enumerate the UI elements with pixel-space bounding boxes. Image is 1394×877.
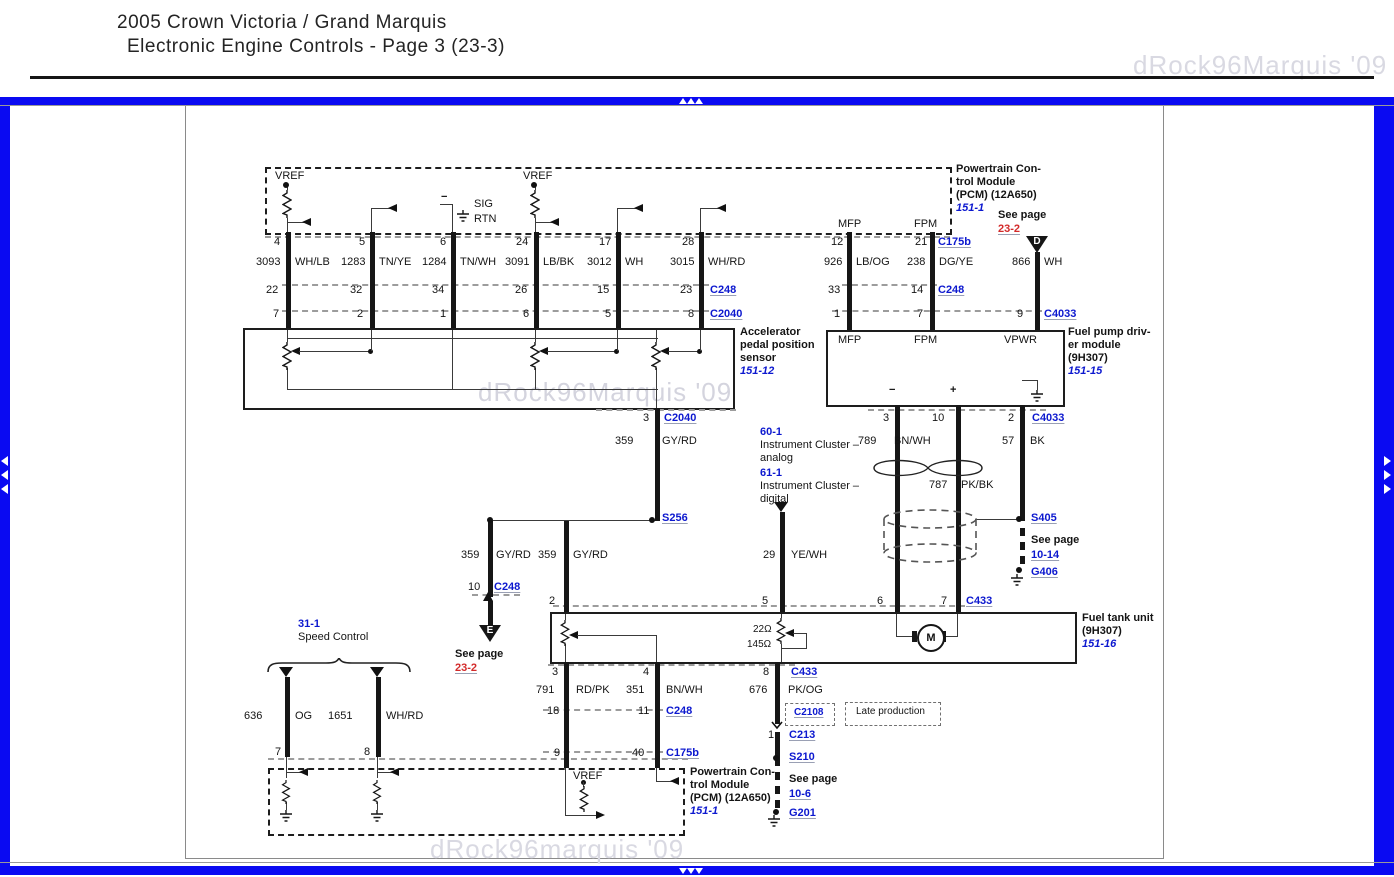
- ftu-wiper2-drop: [806, 633, 807, 649]
- sc2-drop: [377, 757, 378, 778]
- wire-57-dashed: [1020, 528, 1025, 570]
- wire-791: [564, 662, 569, 768]
- sigrtn-ground-icon: [456, 210, 470, 222]
- minus-label: −: [441, 191, 447, 204]
- wire-gauge: 359: [538, 549, 556, 562]
- wire-926: [847, 232, 852, 330]
- app-pot1-resistor: [282, 342, 292, 370]
- pin-number: 34: [432, 284, 444, 297]
- watermark-bottom: dRock96marquis '09: [430, 834, 684, 865]
- connector-c2040: C2040: [664, 412, 696, 425]
- connector-c248: C248: [938, 284, 964, 297]
- see-page-label: See page: [998, 209, 1046, 222]
- fpdm-ground-icon: [1030, 390, 1044, 402]
- pin-number: 1: [768, 729, 774, 742]
- wire-gauge: 1283: [341, 256, 365, 269]
- pin-number: 6: [877, 595, 883, 608]
- scroll-right-icon[interactable]: [1384, 484, 1391, 494]
- fpdm-fpm-label: FPM: [914, 334, 937, 347]
- connector-c248: C248: [666, 705, 692, 718]
- scroll-left-icon[interactable]: [1, 470, 8, 480]
- pin-number: 2: [549, 595, 555, 608]
- wire-color: WH: [1044, 256, 1062, 269]
- sc2-arrow-icon: [390, 768, 399, 776]
- fpdm-label-line2: er module: [1068, 339, 1121, 352]
- fpdm-mfp-label: MFP: [838, 334, 861, 347]
- app-pot2-bot: [535, 368, 536, 390]
- wire-636: [285, 677, 290, 757]
- scroll-up-icon[interactable]: [679, 98, 687, 104]
- speed-wire1-arrow-icon: [279, 667, 293, 677]
- fpdm-vpwr-label: VPWR: [1004, 334, 1037, 347]
- fpdm-plus-label: +: [950, 384, 956, 397]
- pin-number: 10: [932, 412, 944, 425]
- vref3-resistor: [579, 786, 589, 812]
- wire-1283: [370, 232, 375, 328]
- wire-color: DG/YE: [939, 256, 973, 269]
- inner-top-line: [0, 105, 1394, 106]
- vref1-lead2: [287, 218, 288, 232]
- wire-color: GY/RD: [496, 549, 531, 562]
- shield-icon: [880, 508, 980, 566]
- pin-number: 15: [597, 284, 609, 297]
- ftu-resistance-22: 22Ω: [753, 624, 772, 636]
- wire-gauge: 29: [763, 549, 775, 562]
- ftu-motor-line1: [896, 636, 912, 637]
- pin-number: 9: [1017, 308, 1023, 321]
- wire-color: TN/WH: [460, 256, 496, 269]
- rtn-label: RTN: [474, 213, 496, 226]
- wire-gauge: 3091: [505, 256, 529, 269]
- wire-gauge: 866: [1012, 256, 1030, 269]
- splice-s256: S256: [662, 512, 688, 525]
- app-sensor-label-line2: pedal position: [740, 339, 815, 352]
- app-wiper1-line: [299, 351, 372, 352]
- sc1-ground-icon: [279, 810, 293, 822]
- pin-number: 4: [274, 236, 280, 249]
- wire-gauge: 3093: [256, 256, 280, 269]
- pin40-arrow-icon: [670, 777, 679, 785]
- pin5-riser: [371, 208, 372, 232]
- scroll-down-icon[interactable]: [679, 868, 687, 874]
- fpdm-page-ref: 151-15: [1068, 365, 1102, 378]
- app-pot2-top: [535, 330, 536, 342]
- app-pot3-bot: [656, 368, 657, 390]
- connector-line-c4033-top: [832, 310, 1042, 312]
- speed-control-label: Speed Control: [298, 631, 368, 644]
- wire-gauge: 676: [749, 684, 767, 697]
- app-out-drop: [656, 390, 657, 408]
- pin4-arrow-icon: [302, 218, 311, 226]
- ftu-wiper-drop: [656, 635, 657, 662]
- vref2-lead2: [535, 218, 536, 232]
- vref1-resistor: [282, 190, 292, 218]
- ftu-pot2-bot: [781, 644, 782, 662]
- wire-1284: [451, 232, 456, 328]
- connector-c433: C433: [966, 595, 992, 608]
- fpdm-gnd-bracket: [1022, 380, 1038, 381]
- vref-label: VREF: [275, 170, 304, 183]
- wire-3012: [616, 232, 621, 328]
- accelerator-pedal-sensor-box: [243, 328, 735, 410]
- pin-number: 21: [915, 236, 927, 249]
- sc2-resistor: [372, 780, 382, 804]
- pin-number: 7: [917, 308, 923, 321]
- cluster-digital-line2: digital: [760, 493, 789, 506]
- fpm-label: FPM: [914, 218, 937, 231]
- connector-line-c175b-bottom: [543, 751, 663, 753]
- pin-number: 9: [554, 747, 560, 760]
- wire-351: [655, 662, 660, 768]
- pin-number: 12: [831, 236, 843, 249]
- wire-gauge: 359: [615, 435, 633, 448]
- ftu-wiper2-line: [793, 633, 807, 634]
- junction-dot-359: [487, 517, 493, 523]
- pcm-bottom-label-line2: trol Module: [690, 779, 749, 792]
- cluster-digital-ref: 61-1: [760, 467, 782, 480]
- connector-c2040: C2040: [710, 308, 742, 321]
- app-sensor-label-line3: sensor: [740, 352, 776, 365]
- wire-359-left: [488, 521, 493, 597]
- ftu-label-line2: (9H307): [1082, 625, 1122, 638]
- app-wiper2-line: [547, 351, 618, 352]
- see-page-label: See page: [1031, 534, 1079, 547]
- ftu-motor-line2: [946, 636, 958, 637]
- sigrtn-riser: [452, 204, 453, 232]
- s210-splice-dot: [773, 755, 779, 761]
- connector-c175b: C175b: [666, 747, 699, 760]
- app-bottom-rail: [288, 389, 658, 390]
- ftu-resistance-145: 145Ω: [747, 639, 771, 651]
- wire-676-a: [775, 662, 780, 724]
- wire-359-main: [655, 408, 660, 521]
- scroll-right-icon[interactable]: [1384, 470, 1391, 480]
- vref-label: VREF: [523, 170, 552, 183]
- wire-gauge: 359: [461, 549, 479, 562]
- pin-number: 8: [763, 666, 769, 679]
- cluster-analog-ref: 60-1: [760, 426, 782, 439]
- off-page-arrow-e-icon: E: [479, 625, 501, 642]
- g406-ground-icon: [1010, 574, 1024, 586]
- app-wiper3-riser: [700, 330, 701, 351]
- pin-number: 24: [516, 236, 528, 249]
- splice-s405: S405: [1031, 512, 1057, 525]
- ftu-page-ref: 151-16: [1082, 638, 1116, 651]
- scroll-up-icon[interactable]: [687, 98, 695, 104]
- app-pot1-top: [287, 330, 288, 342]
- wire-3091: [534, 232, 539, 328]
- app-sigrtn-drop: [452, 330, 453, 390]
- wire-3093: [286, 232, 291, 328]
- sigrtn-bracket: [440, 204, 453, 205]
- wire-color: WH: [625, 256, 643, 269]
- ftu-wiper-line: [577, 635, 657, 636]
- wire-3015: [699, 232, 704, 328]
- pin-number: 28: [682, 236, 694, 249]
- inner-bottom-line: [0, 862, 1394, 863]
- connector-line-c248-left: [282, 284, 709, 286]
- pin-number: 2: [1008, 412, 1014, 425]
- pcm-bottom-label-line3: (PCM) (12A650): [690, 792, 771, 805]
- app-wiper1-riser: [371, 330, 372, 351]
- ftu-sender-resistor: [560, 620, 570, 646]
- wire-color: PK/BK: [961, 479, 993, 492]
- see-page-label: See page: [455, 648, 503, 661]
- pin-number: 11: [638, 705, 649, 718]
- sc2-ground-icon: [370, 810, 384, 822]
- pcm-page-ref: 151-1: [956, 202, 984, 215]
- wire-color: WH/RD: [708, 256, 745, 269]
- g406-dot: [1016, 567, 1022, 573]
- app-top-rail: [288, 338, 658, 339]
- wire-359-right: [564, 521, 569, 612]
- wire-gauge: 787: [929, 479, 947, 492]
- off-page-arrow-d-icon: D: [1026, 236, 1048, 253]
- speed-wire2-arrow-icon: [370, 667, 384, 677]
- s405-tie-line: [976, 519, 1020, 520]
- s405-splice-dot: [1016, 516, 1022, 522]
- pin-number: 5: [762, 595, 768, 608]
- g201-dot: [773, 809, 779, 815]
- connector-c2108: C2108: [794, 707, 823, 719]
- wire-gauge: 636: [244, 710, 262, 723]
- pcm-label-line3: (PCM) (12A650): [956, 189, 1037, 202]
- connector-line-c2040: [282, 310, 709, 312]
- pin-number: 8: [364, 746, 370, 759]
- pin-number: 3: [643, 412, 649, 425]
- app-wiper2-riser: [617, 330, 618, 351]
- ftu-motor-lead1: [896, 614, 897, 637]
- pin-number: 26: [515, 284, 527, 297]
- scan-right-edge: [1163, 106, 1164, 858]
- pin-number: 14: [911, 284, 923, 297]
- wire-color: GY/RD: [662, 435, 697, 448]
- pin-number: 1: [440, 308, 446, 321]
- pin-number: 4: [643, 666, 649, 679]
- ftu-level-resistor: [776, 618, 786, 644]
- pin-number: 5: [359, 236, 365, 249]
- pin17-riser: [617, 208, 618, 232]
- wire-676-dashed: [775, 758, 780, 812]
- pin-number: 6: [523, 308, 529, 321]
- sig-label: SIG: [474, 198, 493, 211]
- connector-c175b: C175b: [938, 236, 971, 249]
- app-sensor-page-ref: 151-12: [740, 365, 774, 378]
- app-pot3-top: [656, 330, 657, 342]
- wire-color: TN/YE: [379, 256, 411, 269]
- wire-gauge: 57: [1002, 435, 1014, 448]
- pin-number: 7: [273, 308, 279, 321]
- app-pot1-bot: [287, 368, 288, 390]
- wire-color: LB/BK: [543, 256, 574, 269]
- app-pot2-resistor: [530, 342, 540, 370]
- scroll-up-icon[interactable]: [695, 98, 703, 104]
- s256-tie-line: [488, 520, 655, 521]
- fpdm-gnd-drop: [1037, 380, 1038, 390]
- speed-control-ref: 31-1: [298, 618, 320, 631]
- pin-number: 3: [552, 666, 558, 679]
- scan-left-edge: [185, 106, 186, 858]
- wiring-diagram-page: 2005 Crown Victoria / Grand Marquis Elec…: [0, 0, 1394, 877]
- pcm-bottom-box: [268, 768, 685, 836]
- pin-number: 1: [834, 308, 840, 321]
- scroll-left-icon[interactable]: [1, 484, 8, 494]
- wire-color: BN/WH: [666, 684, 703, 697]
- wire-866: [1035, 252, 1040, 330]
- connector-line-pcm-bottom: [268, 758, 688, 760]
- scroll-down-icon[interactable]: [687, 868, 695, 874]
- pin28-arrow-icon: [717, 204, 726, 212]
- vref2-resistor: [530, 190, 540, 218]
- fpdm-label-line3: (9H307): [1068, 352, 1108, 365]
- wire-gauge: 1284: [422, 256, 446, 269]
- sc1-resistor: [281, 780, 291, 804]
- connector-c433: C433: [791, 666, 817, 679]
- wire-gauge: 791: [536, 684, 554, 697]
- wire-gauge: 789: [858, 435, 876, 448]
- connector-c4033: C4033: [1044, 308, 1076, 321]
- wire-color: LB/OG: [856, 256, 890, 269]
- pin-number: 18: [547, 705, 559, 718]
- wire-color: WH/LB: [295, 256, 330, 269]
- pin-number: 6: [440, 236, 446, 249]
- pin5-arrow-icon: [388, 204, 397, 212]
- vref-label: VREF: [573, 770, 602, 783]
- sc1-drop: [286, 757, 287, 778]
- wire-1651: [376, 677, 381, 757]
- scroll-right-icon[interactable]: [1384, 456, 1391, 466]
- cluster-analog-line2: analog: [760, 452, 793, 465]
- wire-color: BK: [1030, 435, 1045, 448]
- pin-number: 7: [941, 595, 947, 608]
- splice-s210: S210: [789, 751, 815, 764]
- pin28-riser: [700, 208, 701, 232]
- scroll-left-icon[interactable]: [1, 456, 8, 466]
- wire-gauge: 926: [824, 256, 842, 269]
- pin9-drop: [565, 760, 566, 816]
- page-title-line2: Electronic Engine Controls - Page 3 (23-…: [127, 36, 505, 58]
- see-page-ref: 23-2: [998, 223, 1020, 236]
- pin-number: 40: [632, 747, 644, 760]
- pin-number: 33: [828, 284, 840, 297]
- wire-color: RD/PK: [576, 684, 610, 697]
- connector-c248: C248: [494, 581, 520, 594]
- pin-number: 8: [688, 308, 694, 321]
- pin9-arrow-icon: [596, 811, 605, 819]
- ground-g201: G201: [789, 807, 816, 820]
- pcm-bottom-page-ref: 151-1: [690, 805, 718, 818]
- connector-c4033: C4033: [1032, 412, 1064, 425]
- pin-number: 23: [680, 284, 692, 297]
- app-pot3-resistor: [651, 342, 661, 370]
- ftu-motor-lead2: [957, 614, 958, 637]
- wire-gauge: 1651: [328, 710, 352, 723]
- pin-number: 22: [266, 284, 278, 297]
- see-page-ref-1014: 10-14: [1031, 549, 1059, 562]
- wire-color: PK/OG: [788, 684, 823, 697]
- pcm-label-line1: Powertrain Con-: [956, 163, 1041, 176]
- wire-238: [930, 232, 935, 330]
- wire-gauge: 3012: [587, 256, 611, 269]
- wire-color: BN/WH: [894, 435, 931, 448]
- wire-color: OG: [295, 710, 312, 723]
- cluster-digital-line1: Instrument Cluster –: [760, 480, 859, 493]
- pin17-arrow-icon: [634, 204, 643, 212]
- app-sensor-label-line1: Accelerator: [740, 326, 801, 339]
- pcm-label-line2: trol Module: [956, 176, 1015, 189]
- pin-number: 10: [468, 581, 480, 594]
- wire-color: WH/RD: [386, 710, 423, 723]
- wire-359-to-e: [488, 601, 493, 627]
- fpdm-minus-label: −: [889, 384, 895, 397]
- e-wire-up-arrow-icon: [483, 592, 493, 601]
- ftu-label-line1: Fuel tank unit: [1082, 612, 1154, 625]
- header-rule: [30, 76, 1374, 79]
- ftu-wiper2-return: [781, 648, 807, 649]
- wire-color: YE/WH: [791, 549, 827, 562]
- cluster-analog-line1: Instrument Cluster –: [760, 439, 859, 452]
- connector-line-c433-top: [553, 605, 965, 607]
- scroll-down-icon[interactable]: [695, 868, 703, 874]
- pin-number: 7: [275, 746, 281, 759]
- wire-gauge: 351: [626, 684, 644, 697]
- wire-29: [780, 512, 785, 612]
- wire-gauge: 3015: [670, 256, 694, 269]
- page-title-line1: 2005 Crown Victoria / Grand Marquis: [117, 12, 447, 34]
- fpdm-label-line1: Fuel pump driv-: [1068, 326, 1151, 339]
- connector-c213: C213: [789, 729, 815, 742]
- late-production-label: Late production: [856, 706, 925, 718]
- connector-line-c2040-mid: [596, 409, 736, 411]
- pin24-arrow-icon: [550, 218, 559, 226]
- s256-splice-dot: [649, 517, 655, 523]
- sc1-arrow-icon: [299, 768, 308, 776]
- pin-number: 32: [350, 284, 362, 297]
- ground-g406: G406: [1031, 566, 1058, 579]
- wire-gauge: 238: [907, 256, 925, 269]
- ftu-pot-bot: [565, 644, 566, 662]
- pin-number: 5: [605, 308, 611, 321]
- see-page-label: See page: [789, 773, 837, 786]
- fuel-pump-motor-icon: M: [917, 624, 945, 652]
- pin-number: 2: [357, 308, 363, 321]
- pin-number: 3: [883, 412, 889, 425]
- wire-57: [1020, 405, 1025, 521]
- wire-color: GY/RD: [573, 549, 608, 562]
- g201-ground-icon: [767, 815, 781, 827]
- mfp-label: MFP: [838, 218, 861, 231]
- pin-number: 17: [599, 236, 611, 249]
- pcm-bottom-label-line1: Powertrain Con-: [690, 766, 775, 779]
- connector-line-c248-mid: [472, 594, 520, 596]
- see-page-ref-106: 10-6: [789, 788, 811, 801]
- see-page-ref: 23-2: [455, 662, 477, 675]
- fuel-tank-unit-box: [550, 612, 1077, 664]
- connector-c248: C248: [710, 284, 736, 297]
- connector-line-c433-bottom: [548, 664, 795, 666]
